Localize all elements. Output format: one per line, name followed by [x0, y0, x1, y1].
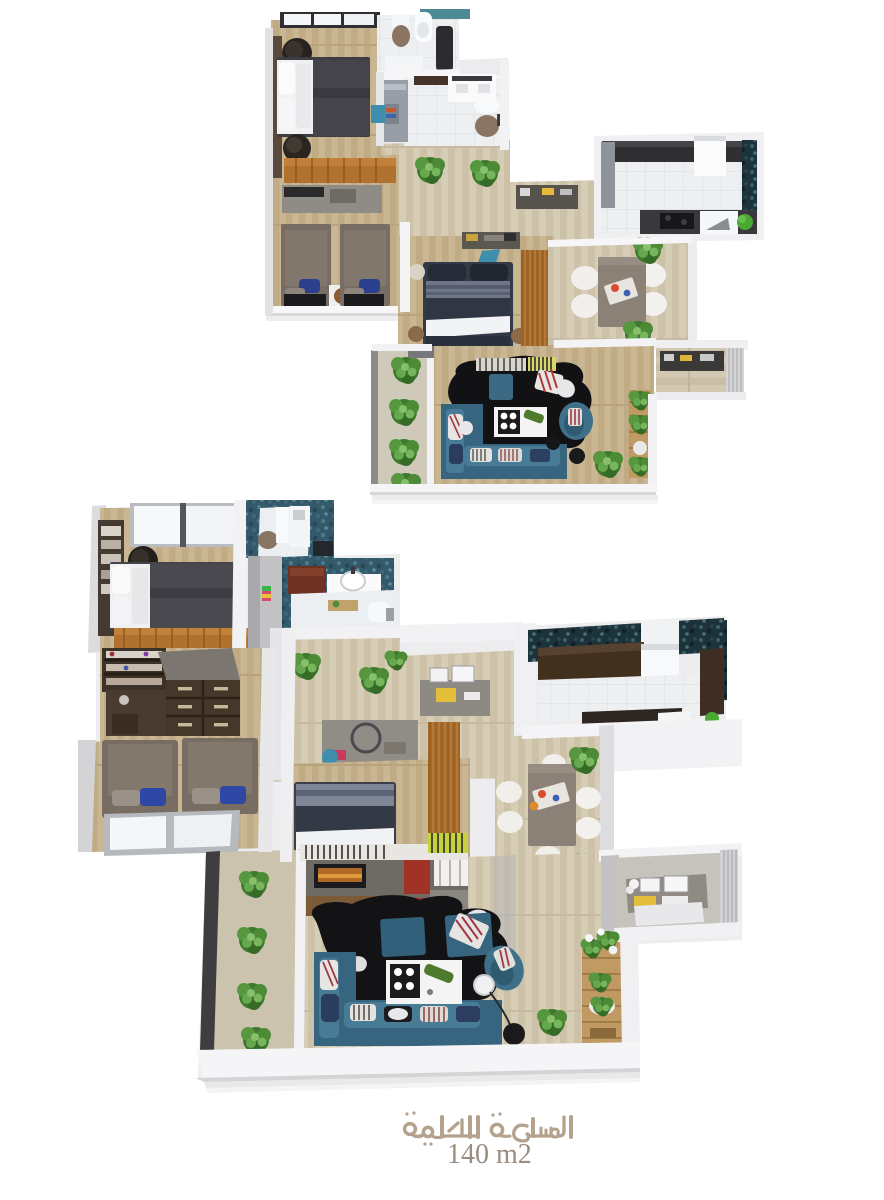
svg-text:140 m2: 140 m2 — [447, 1139, 532, 1170]
